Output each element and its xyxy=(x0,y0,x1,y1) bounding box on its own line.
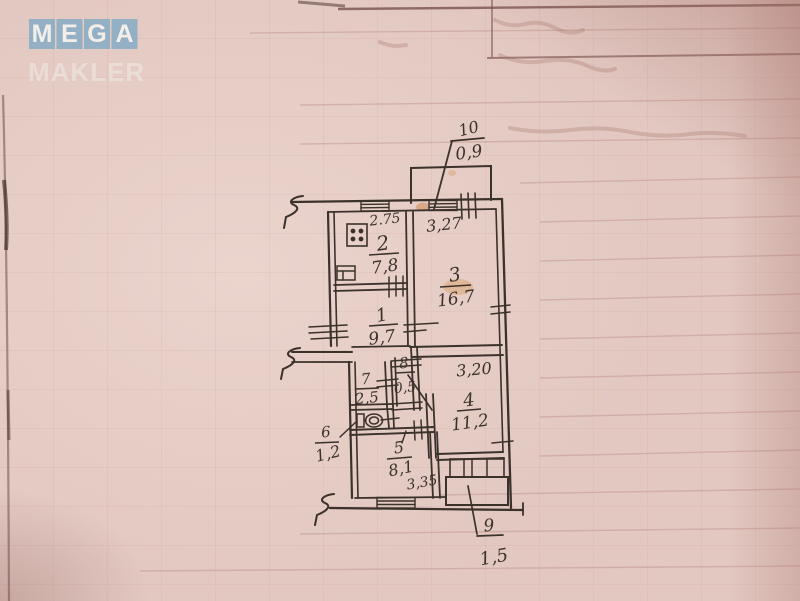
logo-letter-m: M xyxy=(32,20,53,48)
floor-plan-photo: M E G A MAKLER xyxy=(0,0,800,601)
floor-plan-canvas: M E G A MAKLER xyxy=(0,0,800,601)
logo-letter-g: G xyxy=(87,20,106,48)
room8-number-label: 8 xyxy=(398,354,409,373)
room10-area-label: 0,9 xyxy=(454,141,484,165)
logo-letter-a: A xyxy=(115,20,133,48)
logo-letter-e: E xyxy=(61,20,78,48)
logo-subtitle: MAKLER xyxy=(28,57,145,87)
paper-background xyxy=(0,0,800,601)
room2-area-label: 7,8 xyxy=(370,255,400,279)
room7-area-label: 2,5 xyxy=(353,388,380,408)
room9-number-label: 9 xyxy=(483,516,496,537)
room1-area-label: 9,7 xyxy=(367,326,397,350)
room3-width-label: 3,27 xyxy=(425,213,463,236)
room4-width-label: 3,20 xyxy=(455,358,492,380)
room8-area-label: 0,5 xyxy=(393,379,417,397)
room2-width-label: 2.75 xyxy=(368,210,402,229)
